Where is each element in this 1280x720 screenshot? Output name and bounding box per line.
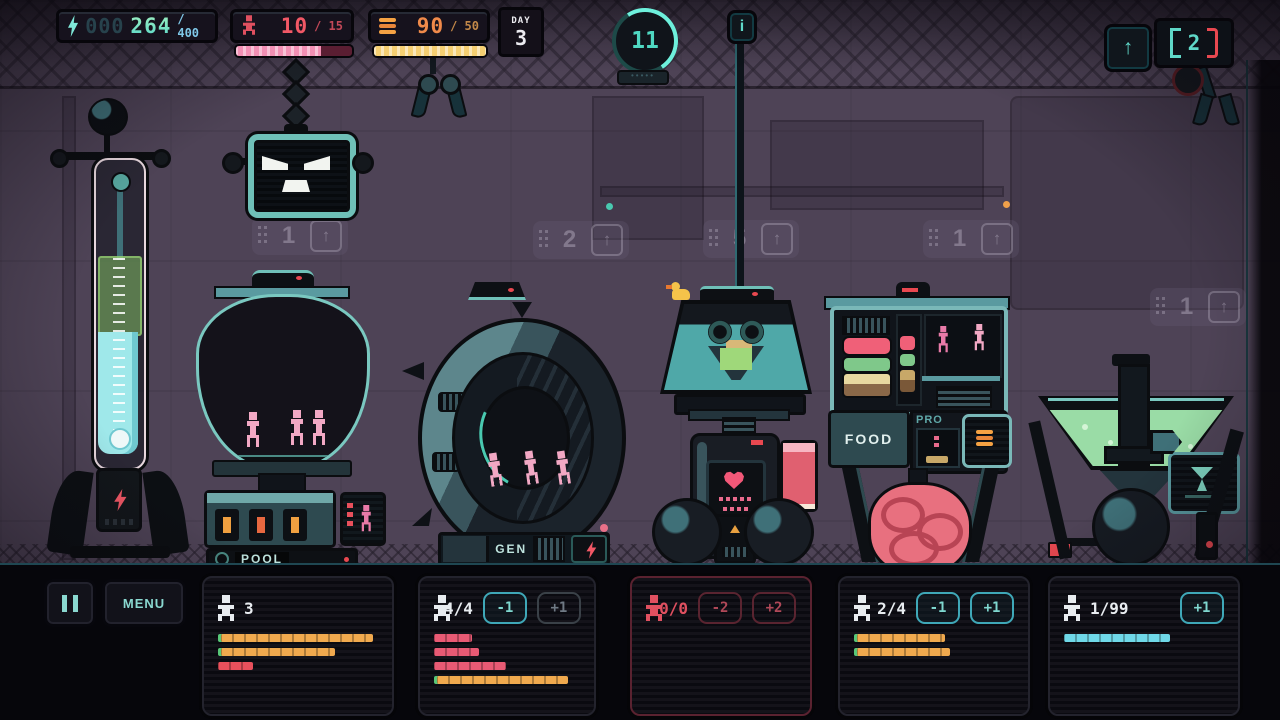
cyan-light (606, 203, 613, 210)
person-icon (243, 15, 255, 35)
resource-bar (437, 676, 568, 684)
up-arrow-icon: ↑ (1123, 36, 1134, 60)
marker-dots (929, 229, 938, 249)
wave-badge-value: 11 (631, 28, 659, 54)
bracket-icon (1170, 28, 1181, 58)
energy-value: 264 (130, 14, 171, 38)
up-arrow-icon: ↑ (981, 223, 1013, 255)
upgrade-marker: 1 ↑ (1150, 288, 1246, 326)
upgrade-marker: 5 ↑ (703, 220, 799, 258)
floor-lattice (0, 544, 1280, 563)
energy-counter: 000 264 / 400 (56, 9, 218, 43)
food-bar-fill (374, 46, 486, 56)
lightning-icon (67, 15, 79, 37)
person-icon (1064, 595, 1080, 621)
food-max: / 50 (450, 19, 479, 33)
resource-bar (434, 662, 506, 670)
population-value: 10 (281, 14, 308, 38)
rep-tank (652, 498, 722, 566)
upgrade-marker: 2 ↑ (533, 221, 629, 259)
orange-light (1003, 201, 1010, 208)
info-label: i (740, 18, 744, 36)
population-counter: 10 / 15 (230, 9, 354, 43)
stat-panel-food[interactable]: 2/4 -1+1 (838, 576, 1030, 716)
panel-count: 1/99 (1090, 599, 1129, 618)
stat-panel-pool[interactable]: 3 (202, 576, 394, 716)
panel-count: 3 (244, 599, 254, 618)
resource-bar (221, 634, 373, 642)
food-bar (372, 44, 488, 58)
panel-adjust-button[interactable]: +2 (752, 592, 796, 624)
human-figure (290, 410, 304, 446)
robot-mouth (282, 180, 310, 192)
gen-label: GEN (495, 542, 527, 556)
menu-label: MENU (123, 596, 165, 611)
human-figure (246, 412, 260, 448)
ceiling-line (0, 86, 1280, 89)
day-label: DAY (511, 17, 530, 26)
marker-value: 1 (273, 222, 304, 250)
hanging-pole (735, 36, 744, 302)
marker-dots (539, 230, 548, 250)
rep-tank (744, 498, 814, 566)
food-counter: 90 / 50 (368, 9, 490, 43)
resource-bar (434, 634, 472, 642)
bottom-bar: MENU 3 4/4 -1+1 0/0 -2+2 (0, 563, 1280, 720)
marker-value: 2 (554, 226, 585, 254)
pool-side-panel (340, 492, 386, 546)
intestines (868, 482, 972, 576)
energy-max: / 400 (177, 12, 207, 40)
wall-panel (592, 96, 704, 240)
food-value: 90 (417, 14, 444, 38)
claw-icon (1207, 28, 1218, 58)
population-bar-fill (236, 46, 321, 56)
resource-bar (434, 648, 479, 656)
food-chute (916, 428, 960, 468)
panel-count: 0/0 (659, 599, 688, 618)
population-bar (234, 44, 354, 58)
marker-dots (258, 226, 267, 246)
upgrade-button[interactable]: ↑ (1104, 24, 1152, 72)
burger-icon (976, 430, 993, 446)
panel-adjust-button[interactable]: +1 (537, 592, 581, 624)
person-icon (218, 595, 234, 621)
resource-bar (218, 662, 253, 670)
duck (670, 282, 694, 300)
resource-bar (857, 648, 950, 656)
resource-bar (1064, 634, 1170, 642)
up-arrow-icon: ↑ (1208, 291, 1240, 323)
pause-button[interactable] (44, 579, 96, 627)
panel-adjust-button[interactable]: -1 (916, 592, 960, 624)
wall-pipe (600, 186, 1004, 197)
food-screen (962, 414, 1012, 468)
panel-adjust-button[interactable]: -1 (483, 592, 527, 624)
stat-panel-reproduction[interactable]: 0/0 -2+2 (630, 576, 812, 716)
panel-adjust-button[interactable]: -2 (698, 592, 742, 624)
panel-adjust-button[interactable]: +1 (1180, 592, 1224, 624)
day-value: 3 (515, 28, 527, 48)
human-figure (938, 326, 949, 353)
food-cabinet (830, 306, 1008, 416)
resource-bar (221, 648, 335, 656)
claw-counter[interactable]: 2 (1154, 18, 1234, 68)
human-figure (312, 410, 326, 446)
wave-badge[interactable]: 11 (612, 8, 678, 74)
screen-edge (1246, 60, 1280, 563)
up-arrow-icon: ↑ (310, 220, 342, 252)
day-counter: DAY 3 (498, 7, 544, 57)
marker-value: 1 (944, 225, 975, 253)
marker-value: 1 (1171, 293, 1202, 321)
marker-dots (709, 229, 718, 249)
grinder-drum (1092, 488, 1170, 566)
person-icon (854, 595, 867, 621)
rep-dome (660, 300, 812, 394)
badge-stars: ••••• (617, 70, 669, 85)
stat-panel-generator[interactable]: 4/4 -1+1 (418, 576, 596, 716)
resource-bar (857, 634, 945, 642)
energy-pad: 000 (85, 14, 124, 38)
thermometer-tube (94, 158, 146, 470)
up-arrow-icon: ↑ (761, 223, 793, 255)
pro-label: PRO (916, 414, 943, 426)
panel-adjust-button[interactable]: +1 (970, 592, 1014, 624)
info-button[interactable]: i (727, 10, 757, 44)
burger-icon (379, 18, 396, 34)
up-arrow-icon: ↑ (591, 224, 623, 256)
game-screen: 1 ↑ 2 ↑ 5 ↑ 1 ↑ 1 ↑ (0, 0, 1280, 720)
menu-button[interactable]: MENU (102, 579, 186, 627)
human-figure (974, 324, 985, 351)
claw-counter-value: 2 (1188, 31, 1201, 55)
food-label: FOOD (845, 431, 893, 447)
wall-machinery (1010, 96, 1244, 310)
stat-panel-grinder[interactable]: 1/99 +1 (1048, 576, 1240, 716)
pool-bowl (196, 294, 370, 470)
upgrade-marker: 1 ↑ (923, 220, 1019, 258)
population-max: / 15 (314, 19, 343, 33)
person-icon (646, 595, 649, 621)
upgrade-marker: 1 ↑ (252, 217, 348, 255)
marker-dots (1156, 297, 1165, 317)
panel-count: 2/4 (877, 599, 906, 618)
